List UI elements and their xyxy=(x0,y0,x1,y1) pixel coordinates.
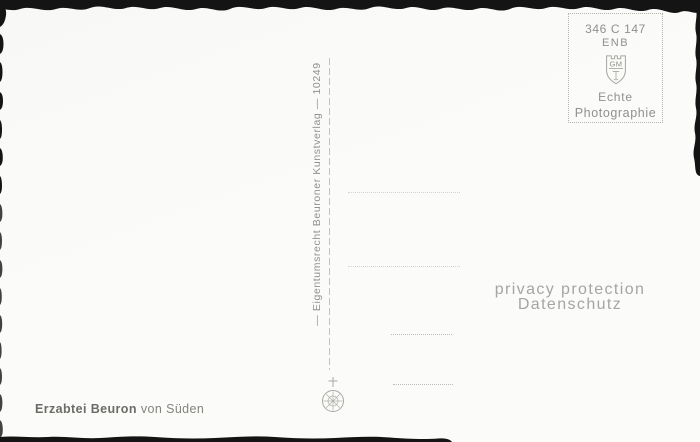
address-dotted-line xyxy=(348,192,460,193)
address-dotted-line xyxy=(348,266,460,267)
caption-subtitle: von Süden xyxy=(141,402,204,416)
scan-edge-bottom xyxy=(0,434,452,442)
privacy-watermark-line2: Datenschutz xyxy=(470,298,670,312)
scan-edge-right xyxy=(686,0,700,180)
stamp-label-line1: Echte xyxy=(598,91,633,104)
publisher-imprint-vertical: — Eigentumsrecht Beuroner Kunstverlag — … xyxy=(311,62,323,325)
privacy-watermark-line1: privacy protection xyxy=(470,283,670,297)
stamp-code: 346 C 147 xyxy=(585,23,646,36)
postcard-back: 346 C 147 ENB GM Echte Photographie — Ei… xyxy=(0,0,700,442)
address-dotted-line xyxy=(393,384,453,385)
stamp-code-secondary: ENB xyxy=(602,37,629,49)
stamp-label-line2: Photographie xyxy=(575,107,657,120)
privacy-watermark: privacy protection Datenschutz xyxy=(470,283,670,312)
scan-edge-left xyxy=(0,0,8,442)
postcard-caption: Erzabtei Beuronvon Süden xyxy=(35,402,204,416)
stamp-box: 346 C 147 ENB GM Echte Photographie xyxy=(568,13,663,123)
center-divider-line xyxy=(329,58,330,370)
address-dotted-line xyxy=(391,334,452,335)
publisher-mark-icon xyxy=(319,374,347,416)
caption-title: Erzabtei Beuron xyxy=(35,402,137,416)
shield-monogram: GM xyxy=(609,60,622,69)
gmt-shield-icon: GM xyxy=(603,54,629,86)
